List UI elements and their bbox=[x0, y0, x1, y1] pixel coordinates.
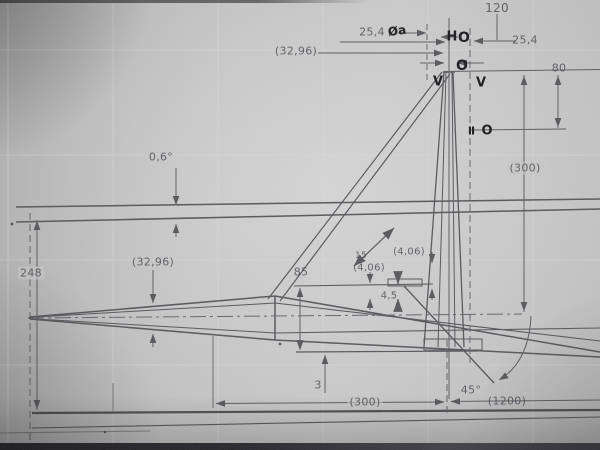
drawing-linework bbox=[0, 0, 600, 450]
dim-label-32-96-top: (32,96) bbox=[275, 45, 317, 58]
photo-top-edge bbox=[0, 0, 370, 3]
photo-grain bbox=[0, 0, 600, 450]
dim-label-25-4-right: 25,4 bbox=[512, 34, 538, 47]
dim-label-3: 3 bbox=[314, 379, 321, 392]
photo-vignette bbox=[0, 0, 600, 450]
dim-label-0-6-deg: 0,6° bbox=[149, 151, 173, 164]
ink-mark-v-2: V bbox=[476, 76, 486, 91]
dim-label-1200: (1200) bbox=[488, 395, 526, 408]
grid-lines bbox=[0, 0, 600, 450]
ink-mark-v-1: V bbox=[433, 75, 443, 90]
dimension-lines bbox=[37, 14, 600, 410]
reference-dots bbox=[11, 223, 282, 434]
ink-mark-ring-1: O bbox=[458, 30, 470, 46]
dim-label-4-5: 4,5 bbox=[381, 291, 398, 302]
dim-label-300-right: (300) bbox=[507, 162, 542, 175]
centerlines bbox=[28, 24, 522, 446]
dim-label-15: 15 bbox=[355, 251, 367, 261]
dim-label-25-4-left: 25,4 bbox=[359, 26, 385, 39]
dim-label-248: 248 bbox=[18, 267, 44, 280]
ink-mark-diameter-a: Øa bbox=[387, 23, 407, 39]
ink-mark-ring-3: O bbox=[481, 124, 492, 139]
ink-mark-ring-2: O bbox=[456, 58, 468, 74]
ink-mark-bars: II bbox=[468, 125, 474, 138]
dim-label-4-06-b: (4,06) bbox=[353, 263, 385, 274]
dim-label-45-deg: 45° bbox=[461, 384, 481, 397]
dim-label-80: 80 bbox=[552, 62, 567, 75]
dim-label-300-bottom: (300) bbox=[347, 396, 382, 409]
dim-label-85: 85 bbox=[294, 266, 309, 279]
photo-of-cad-drawing: 120 25,4 25,4 80 (32,96) (300) 0,6° 248 … bbox=[0, 0, 600, 450]
part-outline bbox=[0, 72, 600, 433]
dim-label-120: 120 bbox=[485, 1, 509, 15]
dim-label-4-06-a: (4,06) bbox=[393, 247, 425, 258]
ink-mark-h: H bbox=[447, 30, 458, 45]
dim-label-32-96-mid: (32,96) bbox=[132, 256, 174, 269]
photo-bottom-dark-band bbox=[0, 443, 600, 450]
